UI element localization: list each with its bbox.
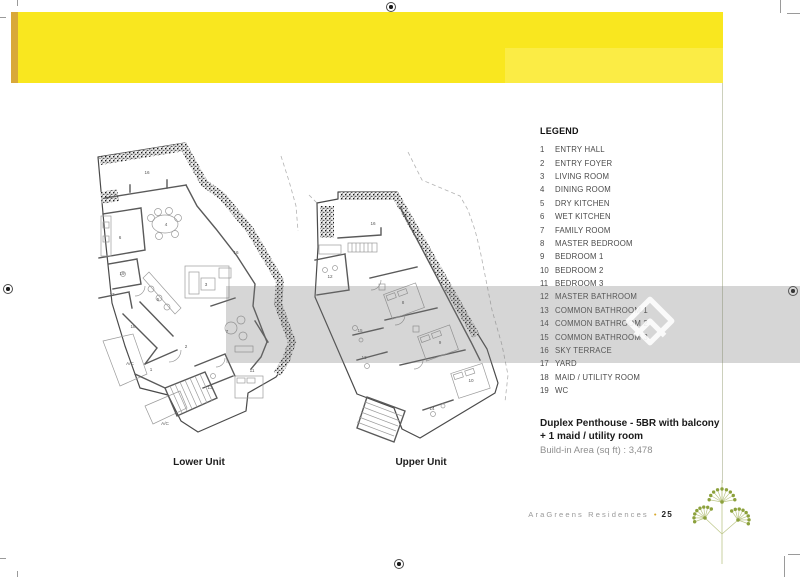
banner-highlight — [505, 48, 723, 83]
crop-mark — [788, 554, 800, 555]
svg-text:16: 16 — [144, 170, 150, 175]
legend-item-label: LIVING ROOM — [555, 172, 609, 181]
svg-text:A/C: A/C — [161, 421, 169, 426]
svg-text:19: 19 — [119, 271, 125, 276]
crop-mark — [17, 0, 18, 6]
footer-brand: AraGreens Residences — [528, 510, 649, 519]
legend-item: 19 WC — [540, 384, 725, 397]
watermark-chevron-logo — [623, 294, 677, 348]
svg-text:5: 5 — [157, 297, 160, 302]
legend-item: 6 WET KITCHEN — [540, 210, 725, 223]
unit-area: Build-in Area (sq ft) : 3,478 — [540, 445, 750, 456]
header-banner — [11, 12, 723, 83]
legend-item-label: BEDROOM 1 — [555, 252, 604, 261]
legend-item-label: DINING ROOM — [555, 185, 611, 194]
legend-item-label: WET KITCHEN — [555, 212, 611, 221]
legend-item-number: 5 — [540, 199, 555, 208]
legend-item-number: 8 — [540, 239, 555, 248]
crop-mark — [17, 571, 18, 577]
registration-mark — [394, 559, 404, 569]
legend-title: LEGEND — [540, 126, 725, 136]
svg-text:13: 13 — [207, 385, 213, 390]
legend-item-number: 1 — [540, 145, 555, 154]
legend-item: 10 BEDROOM 2 — [540, 264, 725, 277]
registration-mark — [386, 2, 396, 12]
legend-item-number: 9 — [540, 252, 555, 261]
svg-text:14: 14 — [429, 406, 435, 411]
legend-item-label: ENTRY FOYER — [555, 159, 612, 168]
legend-item: 3 LIVING ROOM — [540, 170, 725, 183]
unit-title-line1: Duplex Penthouse - 5BR with balcony — [540, 417, 750, 430]
legend-item-label: WC — [555, 386, 568, 395]
svg-text:11: 11 — [250, 368, 255, 373]
svg-text:12: 12 — [327, 274, 333, 279]
legend-item: 9 BEDROOM 1 — [540, 250, 725, 263]
legend-item-number: 6 — [540, 212, 555, 221]
svg-text:6: 6 — [119, 235, 122, 240]
legend-item-number: 2 — [540, 159, 555, 168]
legend-item: 2 ENTRY FOYER — [540, 156, 725, 169]
svg-text:16: 16 — [370, 221, 376, 226]
legend-item: 1 ENTRY HALL — [540, 143, 725, 156]
crop-mark — [780, 0, 781, 13]
svg-text:1: 1 — [150, 367, 153, 372]
legend-item-number: 7 — [540, 226, 555, 235]
crop-mark — [0, 558, 6, 559]
brand-dandelion-logo — [692, 478, 752, 568]
svg-text:16: 16 — [233, 250, 239, 255]
upper-unit-caption: Upper Unit — [395, 457, 446, 468]
legend-item-number: 3 — [540, 172, 555, 181]
svg-text:3: 3 — [205, 282, 208, 287]
unit-info: Duplex Penthouse - 5BR with balcony + 1 … — [540, 417, 750, 456]
banner-accent-strip — [11, 12, 18, 83]
legend-item-label: DRY KITCHEN — [555, 199, 610, 208]
legend-item: 8 MASTER BEDROOM — [540, 237, 725, 250]
svg-text:4: 4 — [165, 222, 168, 227]
legend-item: 5 DRY KITCHEN — [540, 197, 725, 210]
svg-text:17: 17 — [109, 292, 115, 297]
legend-item-label: BEDROOM 2 — [555, 266, 604, 275]
footer-page-number: 25 — [661, 510, 673, 519]
legend-item-number: 10 — [540, 266, 555, 275]
lower-unit-caption: Lower Unit — [173, 457, 225, 468]
legend-item-label: MAID / UTILITY ROOM — [555, 373, 640, 382]
legend-item: 7 FAMILY ROOM — [540, 223, 725, 236]
unit-title-line2: + 1 maid / utility room — [540, 430, 750, 443]
watermark-band — [226, 286, 800, 363]
svg-text:10: 10 — [468, 378, 474, 383]
crop-mark — [784, 556, 785, 577]
svg-text:A/C: A/C — [126, 361, 134, 366]
svg-text:2: 2 — [185, 344, 188, 349]
legend-item: 4 DINING ROOM — [540, 183, 725, 196]
footer-bullet: • — [654, 510, 657, 519]
registration-mark — [3, 284, 13, 294]
legend-item-number: 4 — [540, 185, 555, 194]
legend-item: 18 MAID / UTILITY ROOM — [540, 371, 725, 384]
legend-item-label: MASTER BEDROOM — [555, 239, 633, 248]
legend-item-label: FAMILY ROOM — [555, 226, 611, 235]
legend-item-number: 18 — [540, 373, 555, 382]
legend-item-number: 19 — [540, 386, 555, 395]
brochure-page: 164616357181719211311A/CA/C Lower Unit — [0, 0, 800, 577]
footer: AraGreens Residences • 25 — [540, 510, 673, 519]
svg-text:18: 18 — [130, 324, 136, 329]
crop-mark — [787, 13, 800, 14]
crop-mark — [0, 17, 6, 18]
legend-item-label: ENTRY HALL — [555, 145, 605, 154]
